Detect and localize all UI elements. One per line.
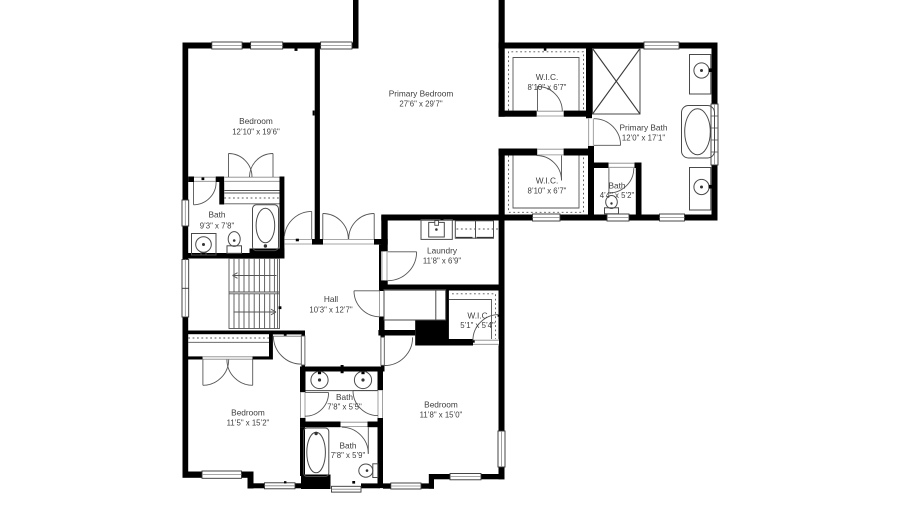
svg-text:Primary Bath: Primary Bath — [620, 123, 668, 133]
svg-text:9’3" x 7’8": 9’3" x 7’8" — [200, 222, 235, 231]
svg-text:Bath: Bath — [336, 392, 353, 402]
svg-text:W.I.C.: W.I.C. — [536, 176, 559, 186]
svg-text:5’1" x 5’4": 5’1" x 5’4" — [460, 321, 495, 330]
svg-text:7’8" x 5’9": 7’8" x 5’9" — [331, 451, 366, 460]
svg-text:Hall: Hall — [324, 294, 338, 304]
svg-text:W.I.C.: W.I.C. — [536, 72, 559, 82]
svg-text:Bedroom: Bedroom — [239, 116, 273, 126]
svg-text:8’10" x 6’7": 8’10" x 6’7" — [528, 187, 567, 196]
svg-text:Bedroom: Bedroom — [424, 400, 458, 410]
svg-text:27’6" x 29’7": 27’6" x 29’7" — [399, 100, 442, 109]
svg-text:11’8" x 15’0": 11’8" x 15’0" — [420, 411, 463, 420]
svg-text:W.I.C: W.I.C — [467, 311, 487, 321]
svg-text:Bedroom: Bedroom — [231, 408, 265, 418]
svg-text:10’3" x 12’7": 10’3" x 12’7" — [309, 306, 352, 315]
svg-text:11’5" x 15’2": 11’5" x 15’2" — [227, 419, 270, 428]
svg-text:Bath: Bath — [208, 210, 225, 220]
svg-text:12’10" x 19’6": 12’10" x 19’6" — [232, 128, 280, 137]
svg-text:7’8" x 5’5": 7’8" x 5’5" — [327, 403, 362, 412]
svg-text:Bath: Bath — [608, 181, 625, 191]
svg-text:12’0" x 17’1": 12’0" x 17’1" — [622, 134, 665, 143]
svg-text:11’8" x 6’9": 11’8" x 6’9" — [423, 257, 462, 266]
svg-text:Primary Bedroom: Primary Bedroom — [389, 89, 454, 99]
svg-text:Bath: Bath — [339, 441, 356, 451]
svg-text:4’4" x 5’2": 4’4" x 5’2" — [600, 191, 635, 200]
svg-text:Laundry: Laundry — [427, 246, 458, 256]
svg-text:8’10" x 6’7": 8’10" x 6’7" — [528, 83, 567, 92]
